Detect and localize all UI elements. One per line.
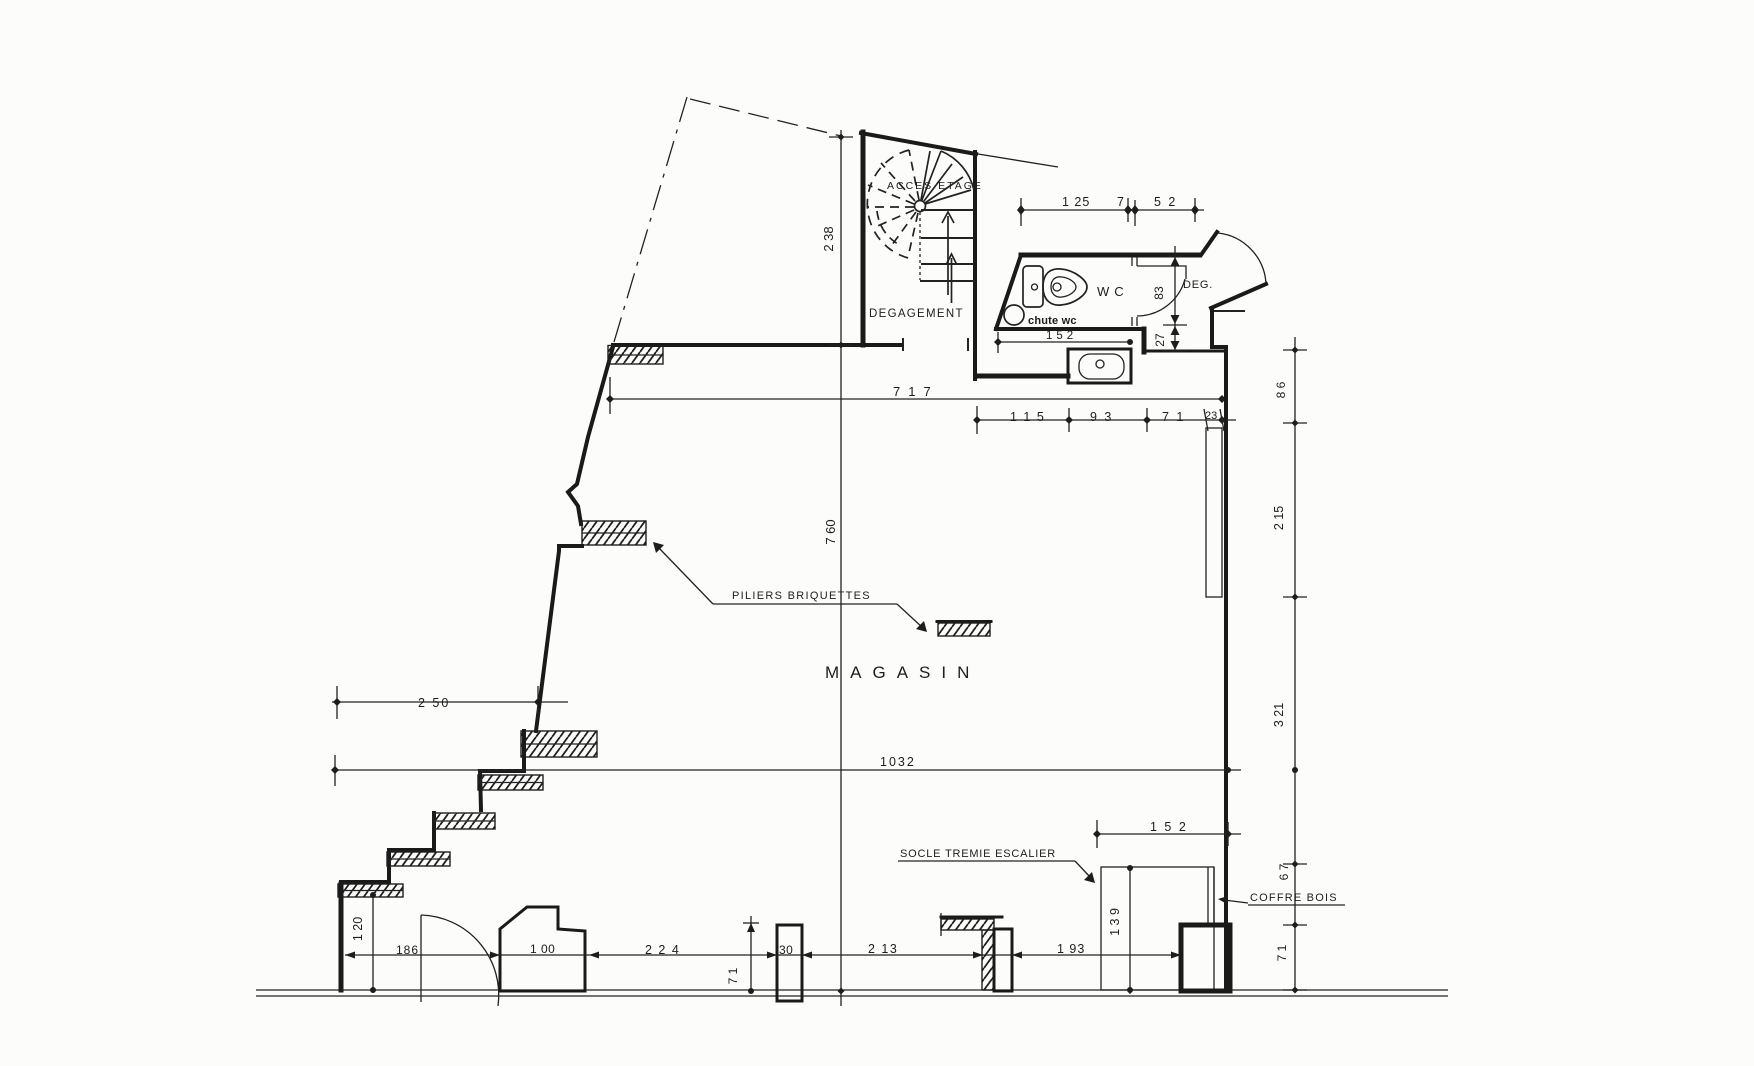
svg-text:7 1: 7 1 [1275, 944, 1289, 961]
svg-text:MAGASIN: MAGASIN [825, 663, 980, 682]
svg-text:186: 186 [396, 943, 419, 957]
svg-text:DEG.: DEG. [1183, 279, 1213, 291]
svg-text:1 25: 1 25 [1062, 195, 1090, 209]
svg-text:2 13: 2 13 [868, 942, 898, 956]
svg-text:30: 30 [779, 943, 793, 957]
svg-text:1 5 2: 1 5 2 [1150, 820, 1188, 834]
svg-text:1 20: 1 20 [351, 917, 365, 941]
svg-text:7 1: 7 1 [726, 967, 740, 984]
svg-text:SOCLE TREMIE ESCALIER: SOCLE TREMIE ESCALIER [900, 848, 1056, 860]
svg-text:83: 83 [1152, 286, 1166, 300]
svg-text:chute wc: chute wc [1028, 315, 1077, 327]
svg-text:7: 7 [1117, 195, 1124, 209]
svg-text:7 1: 7 1 [1162, 410, 1185, 424]
svg-text:1 93: 1 93 [1057, 942, 1085, 956]
svg-text:DEGAGEMENT: DEGAGEMENT [869, 308, 964, 320]
svg-text:23: 23 [1205, 410, 1217, 422]
svg-text:2 2 4: 2 2 4 [645, 943, 680, 957]
svg-text:1 1 5: 1 1 5 [1010, 410, 1045, 424]
svg-text:1 5 2: 1 5 2 [1046, 330, 1074, 342]
svg-text:1 00: 1 00 [530, 942, 555, 956]
svg-text:7 1 7: 7 1 7 [893, 384, 933, 399]
svg-text:COFFRE BOIS: COFFRE BOIS [1250, 892, 1338, 904]
svg-text:9 3: 9 3 [1090, 410, 1113, 424]
svg-text:5 2: 5 2 [1154, 195, 1177, 209]
svg-text:PILIERS BRIQUETTES: PILIERS BRIQUETTES [732, 590, 871, 602]
svg-text:1032: 1032 [880, 755, 916, 769]
svg-text:2 50: 2 50 [418, 696, 450, 710]
svg-text:2 38: 2 38 [821, 226, 836, 251]
svg-text:6 7: 6 7 [1277, 863, 1291, 880]
svg-text:7 60: 7 60 [823, 519, 838, 544]
svg-text:3 21: 3 21 [1272, 703, 1286, 727]
svg-text:WC: WC [1097, 284, 1129, 299]
svg-text:ACCES ETAGE: ACCES ETAGE [887, 180, 983, 192]
svg-text:1 3 9: 1 3 9 [1108, 908, 1122, 936]
svg-text:8 6: 8 6 [1274, 381, 1288, 398]
svg-text:2 15: 2 15 [1272, 506, 1286, 530]
svg-text:27: 27 [1153, 333, 1167, 347]
